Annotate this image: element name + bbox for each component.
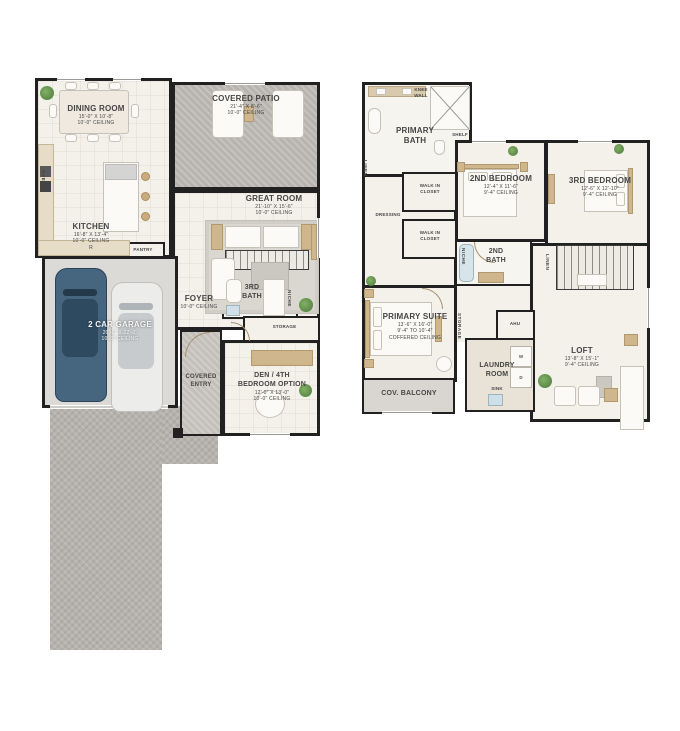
bath-vanity <box>226 305 240 316</box>
loft-label: LOFT 13'-8" X 15'-1" 9'-4" CEILING <box>552 346 612 369</box>
bar-stool <box>141 172 150 181</box>
room-ceiling: 9'-4" CEILING <box>552 362 612 368</box>
dining-chair <box>65 82 77 90</box>
storage-label: STORAGE <box>457 310 462 342</box>
room-name: KITCHEN <box>60 222 122 232</box>
room-ceiling: 9'-4" CEILING <box>459 190 543 196</box>
loft-sofa <box>620 366 644 430</box>
nightstand <box>457 162 465 172</box>
laundry-sink <box>488 394 503 406</box>
room-name-line2: BATH <box>380 136 450 146</box>
plant <box>614 144 624 154</box>
ottoman <box>578 386 600 406</box>
kitchen-label: KITCHEN 16'-8" X 13'-4" 10'-0" CEILING R <box>60 222 122 251</box>
room-name-line2: BATH <box>474 257 518 266</box>
room-name-line2: BATH <box>233 293 271 302</box>
window <box>647 288 650 328</box>
ahu-label: AHU <box>499 321 531 327</box>
sofa <box>263 226 299 248</box>
room-name-line1: 3RD <box>233 284 271 293</box>
laundry-room-label: LAUNDRY ROOM <box>468 362 526 380</box>
dining-chair <box>109 82 121 90</box>
car-windshield <box>63 289 97 296</box>
plant <box>40 86 54 100</box>
room-name: DINING ROOM <box>53 104 139 114</box>
driveway-main <box>50 406 162 650</box>
window <box>317 218 320 258</box>
label-line2: CLOSET <box>407 189 453 195</box>
room-name-line2: ENTRY <box>179 382 223 390</box>
plant <box>299 298 313 312</box>
side-table <box>624 334 638 346</box>
room-ceiling: 10'-0" CEILING <box>70 336 170 342</box>
linen-label: LINEN <box>545 250 550 274</box>
island-cooktop <box>105 164 137 180</box>
window <box>57 78 85 81</box>
room-ceiling: 10'-0" CEILING <box>228 396 316 402</box>
cov-balcony-label: COV. BALCONY <box>370 390 448 399</box>
niche-label: NICHE <box>287 284 292 314</box>
first-floor-plan: DINING ROOM 15'-0" X 10'-8" 10'-0" CEILI… <box>35 78 320 436</box>
walk-in-closet-2-label: WALK IN CLOSET <box>407 230 453 241</box>
covered-patio-label: COVERED PATIO 21'-4" X 8'-6" 10'-0" CEIL… <box>190 94 302 117</box>
sofa <box>225 226 261 248</box>
room-name-line2: BEDROOM OPTION <box>228 381 316 390</box>
bar-stool <box>141 212 150 221</box>
accent-chair <box>436 356 452 372</box>
ottoman <box>554 386 576 406</box>
plant <box>538 374 552 388</box>
side-table <box>211 224 223 250</box>
window <box>225 82 265 85</box>
entry-post <box>173 428 183 438</box>
nightstand <box>364 289 374 298</box>
foyer-label: FOYER 10'-0" CEILING <box>173 294 225 310</box>
third-bedroom-label: 3RD BEDROOM 12'-6" X 12'-10" 9'-4" CEILI… <box>554 176 646 199</box>
dining-chair <box>87 82 99 90</box>
second-bedroom-label: 2ND BEDROOM 12'-4" X 11'-6" 9'-4" CEILIN… <box>459 174 543 197</box>
plant <box>366 276 376 286</box>
bath-vanity <box>478 272 504 283</box>
sink-label: SINK <box>482 386 512 392</box>
den-desk <box>251 350 313 366</box>
dining-room-label: DINING ROOM 15'-0" X 10'-8" 10'-0" CEILI… <box>53 104 139 127</box>
room-name-line1: 2ND <box>474 248 518 257</box>
bar-stool <box>141 192 150 201</box>
primary-suite-label: PRIMARY SUITE 13'-6" X 16'-0" 9'-4" TO 1… <box>374 312 456 341</box>
room-ceiling: 10'-0" CEILING <box>190 110 302 116</box>
room-name: GREAT ROOM <box>228 194 320 204</box>
label-line2: WALL <box>404 93 438 99</box>
second-floor-plan: W D PRIMARY BATH KNEE WALL SHELF 2ND BED… <box>362 78 650 422</box>
den-label: DEN / 4TH BEDROOM OPTION 12'-0" X 13'-0"… <box>228 372 316 402</box>
window <box>113 78 141 81</box>
dining-chair <box>65 134 77 142</box>
walk-in-closet-1-label: WALK IN CLOSET <box>407 183 453 194</box>
room-ceiling: 10'-0" CEILING <box>53 120 139 126</box>
second-bath-label: 2ND BATH <box>474 248 518 266</box>
window <box>250 433 290 436</box>
dressing-label: DRESSING <box>366 212 410 218</box>
covered-entry-label: COVERED ENTRY <box>179 374 223 389</box>
window <box>382 411 432 414</box>
floorplan-page: { "colors":{"walls":"#212121","floor":"#… <box>0 0 680 731</box>
room-ceiling: 9'-4" CEILING <box>554 192 646 198</box>
nightstand <box>364 359 374 368</box>
room-name-line1: DEN / 4TH <box>228 372 316 381</box>
room-name: COVERED PATIO <box>190 94 302 104</box>
garage-label: 2 CAR GARAGE 20'-0" X 22'-0" 10'-0" CEIL… <box>70 320 170 343</box>
room-ceiling: 10'-0" CEILING <box>173 304 225 310</box>
stair-landing <box>577 274 607 286</box>
fridge-label: R <box>60 245 122 251</box>
knee-wall-label: KNEE WALL <box>404 87 438 98</box>
room-name-line1: COVERED <box>179 374 223 382</box>
plant <box>508 146 518 156</box>
window <box>472 140 506 143</box>
room-ceiling: 10'-0" CEILING <box>228 210 320 216</box>
room-name: PRIMARY SUITE <box>374 312 456 322</box>
room-name: LOFT <box>552 346 612 356</box>
dining-chair <box>109 134 121 142</box>
primary-bath-label: PRIMARY BATH <box>380 126 450 146</box>
dining-chair <box>87 134 99 142</box>
car-white <box>111 282 163 412</box>
room-name: 2 CAR GARAGE <box>70 320 170 330</box>
room-ceiling-type: COFFERED CEILING <box>374 335 456 341</box>
niche-label: NICHE <box>461 246 466 268</box>
window <box>578 140 612 143</box>
oven-label: OVEN <box>41 164 46 192</box>
third-bath-label: 3RD BATH <box>233 284 271 302</box>
side-table <box>604 388 618 402</box>
label-line2: CLOSET <box>407 236 453 242</box>
room-name: FOYER <box>173 294 225 304</box>
room-name: 3RD BEDROOM <box>554 176 646 186</box>
sink <box>376 88 386 95</box>
linen-label: LINEN <box>363 156 368 180</box>
room-name: 2ND BEDROOM <box>459 174 543 184</box>
room-name-line1: LAUNDRY <box>468 362 526 371</box>
storage-label: STORAGE <box>257 324 312 330</box>
great-room-label: GREAT ROOM 21'-10" X 15'-6" 10'-0" CEILI… <box>228 194 320 217</box>
nightstand <box>520 162 528 172</box>
tv-console <box>311 224 317 260</box>
room-name-line1: PRIMARY <box>380 126 450 136</box>
car-windshield <box>119 303 153 310</box>
shelf-label: SHELF <box>448 132 472 138</box>
pantry-label: PANTRY <box>121 247 165 253</box>
room-name-line2: ROOM <box>468 371 526 380</box>
